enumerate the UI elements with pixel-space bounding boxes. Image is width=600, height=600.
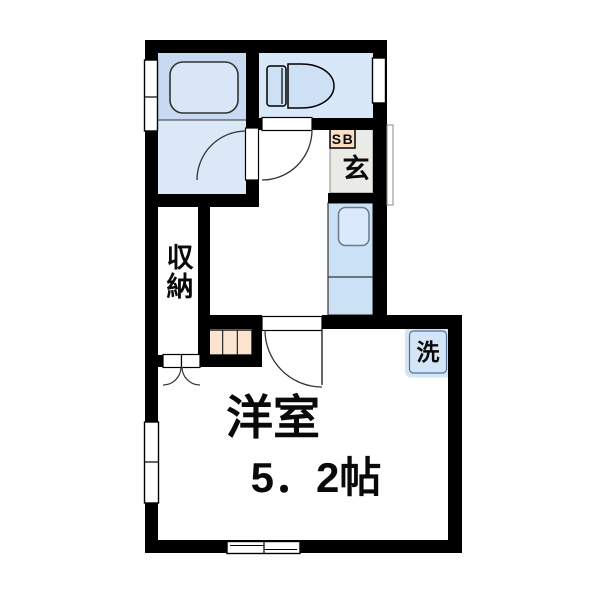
wall-genkan-bottom [328, 193, 373, 203]
door-leaf-entrance [387, 125, 393, 205]
entrance-step [208, 330, 252, 355]
door-arc-closet-right [182, 367, 200, 385]
mainroom-size-label: 5．2帖 [251, 454, 382, 501]
toilet-tank [267, 66, 286, 106]
shoebox-label: SB [332, 131, 354, 147]
closet-label-char-1: 収 [167, 243, 195, 273]
wall-bathroom-bottom [145, 194, 259, 207]
wall-mainroom-top-left [198, 315, 262, 329]
wall-bottom [145, 540, 462, 553]
wall-closet-right [198, 207, 210, 355]
mainroom-name-label: 洋室 [226, 391, 320, 444]
washer-label: 洗 [417, 339, 440, 365]
bathtub [170, 62, 238, 113]
window-bathroom-left [145, 60, 158, 131]
closet-label-char-2: 納 [167, 271, 194, 302]
door-arc-closet-left [163, 367, 181, 385]
door-leaf-closet-left [163, 355, 182, 368]
door-leaf-bathroom [246, 128, 259, 180]
wall-bath-toilet-divider [246, 53, 259, 128]
door-leaf-hallway [262, 118, 312, 131]
door-arc-hallway [262, 130, 312, 180]
floor-plan: SB 玄 収 納 洗 洋室 5．2帖 [0, 0, 600, 600]
window-toilet-right [373, 58, 386, 103]
door-arc-mainroom [265, 330, 322, 387]
floor-plan-canvas: SB 玄 収 納 洗 洋室 5．2帖 [0, 0, 600, 600]
wall-bath-door-stub [246, 180, 259, 194]
genkan-label: 玄 [343, 153, 370, 184]
wall-mainroom-top-right [322, 315, 462, 329]
door-opening-mainroom [262, 317, 322, 331]
wall-top [145, 40, 387, 53]
door-leaf-closet-right [182, 355, 201, 368]
wall-right-lower [448, 315, 462, 553]
kitchen-sink [339, 208, 370, 246]
